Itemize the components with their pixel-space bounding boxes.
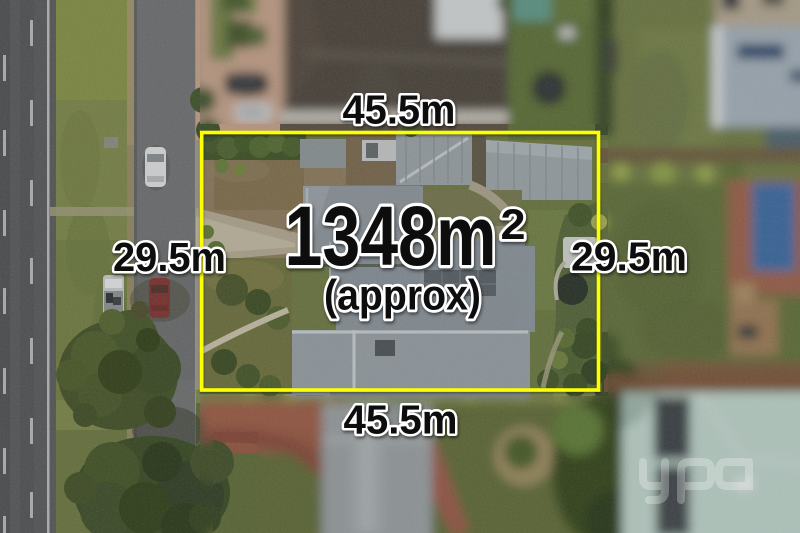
svg-text:45.5m: 45.5m xyxy=(344,397,458,443)
svg-text:45.5m: 45.5m xyxy=(343,87,456,133)
svg-text:1348m: 1348m xyxy=(285,189,497,283)
svg-text:(approx): (approx) xyxy=(324,272,481,320)
svg-text:29.5m: 29.5m xyxy=(571,234,687,280)
svg-text:2: 2 xyxy=(501,201,526,249)
svg-text:29.5m: 29.5m xyxy=(113,234,226,280)
